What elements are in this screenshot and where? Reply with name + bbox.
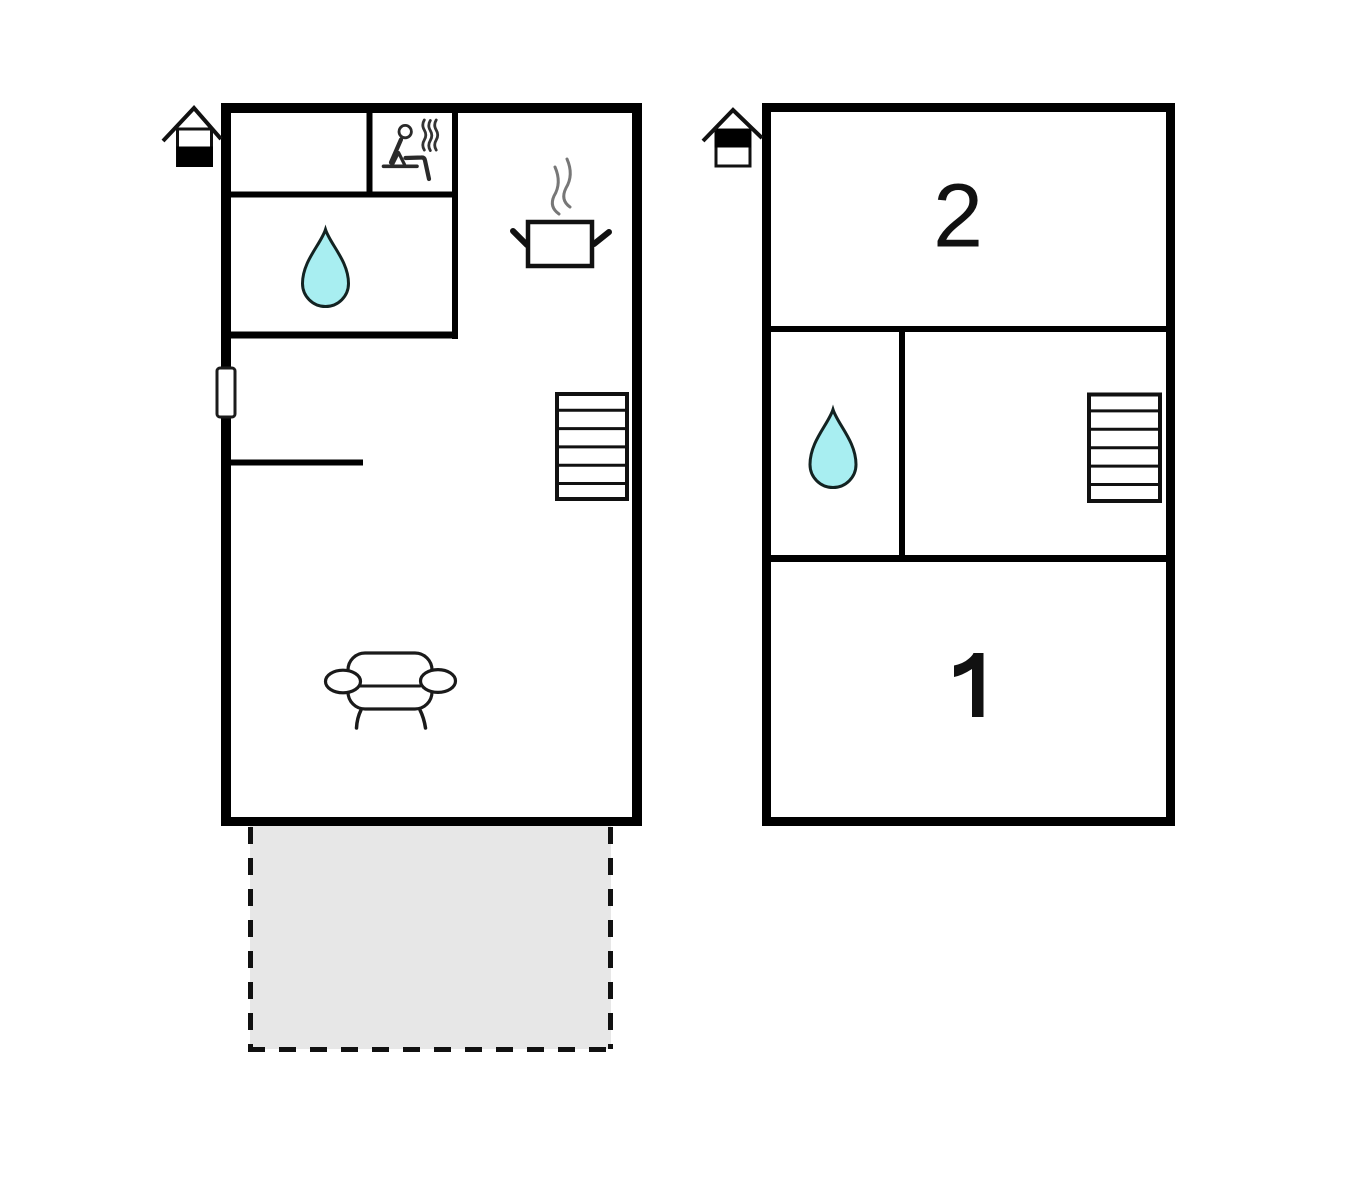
svg-text:2: 2 (933, 167, 983, 267)
